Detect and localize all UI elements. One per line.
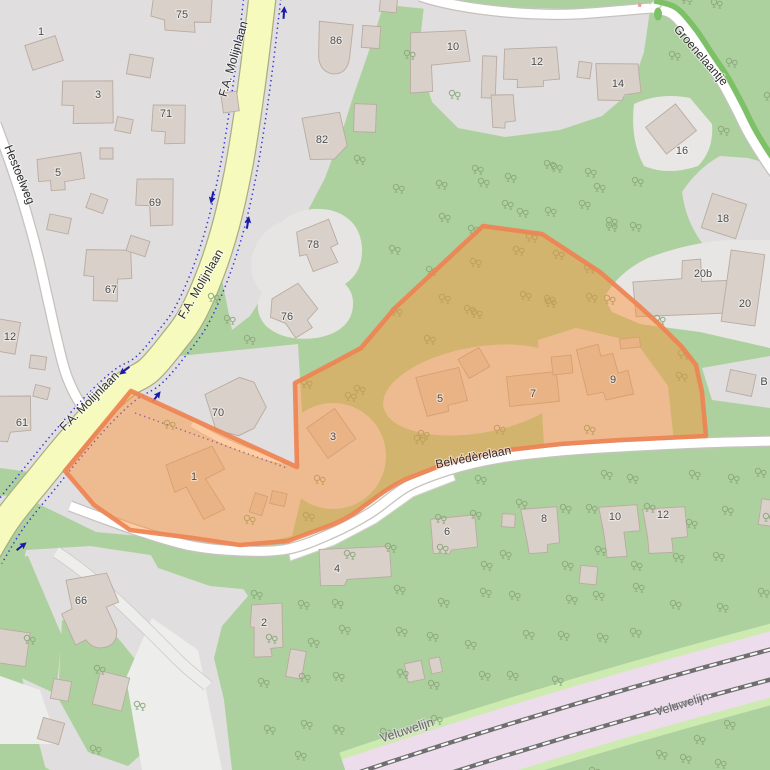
- svg-text:8: 8: [541, 513, 547, 525]
- svg-text:20b: 20b: [694, 268, 712, 280]
- svg-text:4: 4: [334, 563, 340, 575]
- svg-text:5: 5: [437, 393, 443, 405]
- svg-text:67: 67: [105, 284, 117, 296]
- svg-text:6: 6: [444, 526, 450, 538]
- svg-text:71: 71: [160, 108, 172, 120]
- svg-text:12: 12: [657, 509, 669, 521]
- svg-text:B: B: [760, 376, 767, 388]
- svg-text:75: 75: [176, 9, 188, 21]
- svg-text:3: 3: [95, 89, 101, 101]
- svg-text:70: 70: [212, 407, 224, 419]
- svg-text:7: 7: [530, 388, 536, 400]
- svg-text:20: 20: [739, 298, 751, 310]
- svg-text:10: 10: [609, 511, 621, 523]
- svg-text:82: 82: [316, 134, 328, 146]
- svg-text:66: 66: [75, 595, 87, 607]
- svg-text:18: 18: [717, 213, 729, 225]
- svg-text:76: 76: [281, 311, 293, 323]
- svg-text:69: 69: [149, 197, 161, 209]
- svg-text:86: 86: [330, 35, 342, 47]
- svg-text:2: 2: [261, 617, 267, 629]
- svg-text:5: 5: [55, 167, 61, 179]
- svg-text:12: 12: [531, 56, 543, 68]
- svg-text:61: 61: [16, 417, 28, 429]
- svg-text:10: 10: [447, 41, 459, 53]
- svg-text:16: 16: [676, 145, 688, 157]
- svg-text:9: 9: [610, 374, 616, 386]
- svg-text:12: 12: [4, 331, 16, 343]
- svg-text:1: 1: [38, 26, 44, 38]
- svg-text:3: 3: [330, 431, 336, 443]
- svg-text:14: 14: [612, 78, 624, 90]
- svg-text:78: 78: [307, 239, 319, 251]
- svg-text:1: 1: [191, 471, 197, 483]
